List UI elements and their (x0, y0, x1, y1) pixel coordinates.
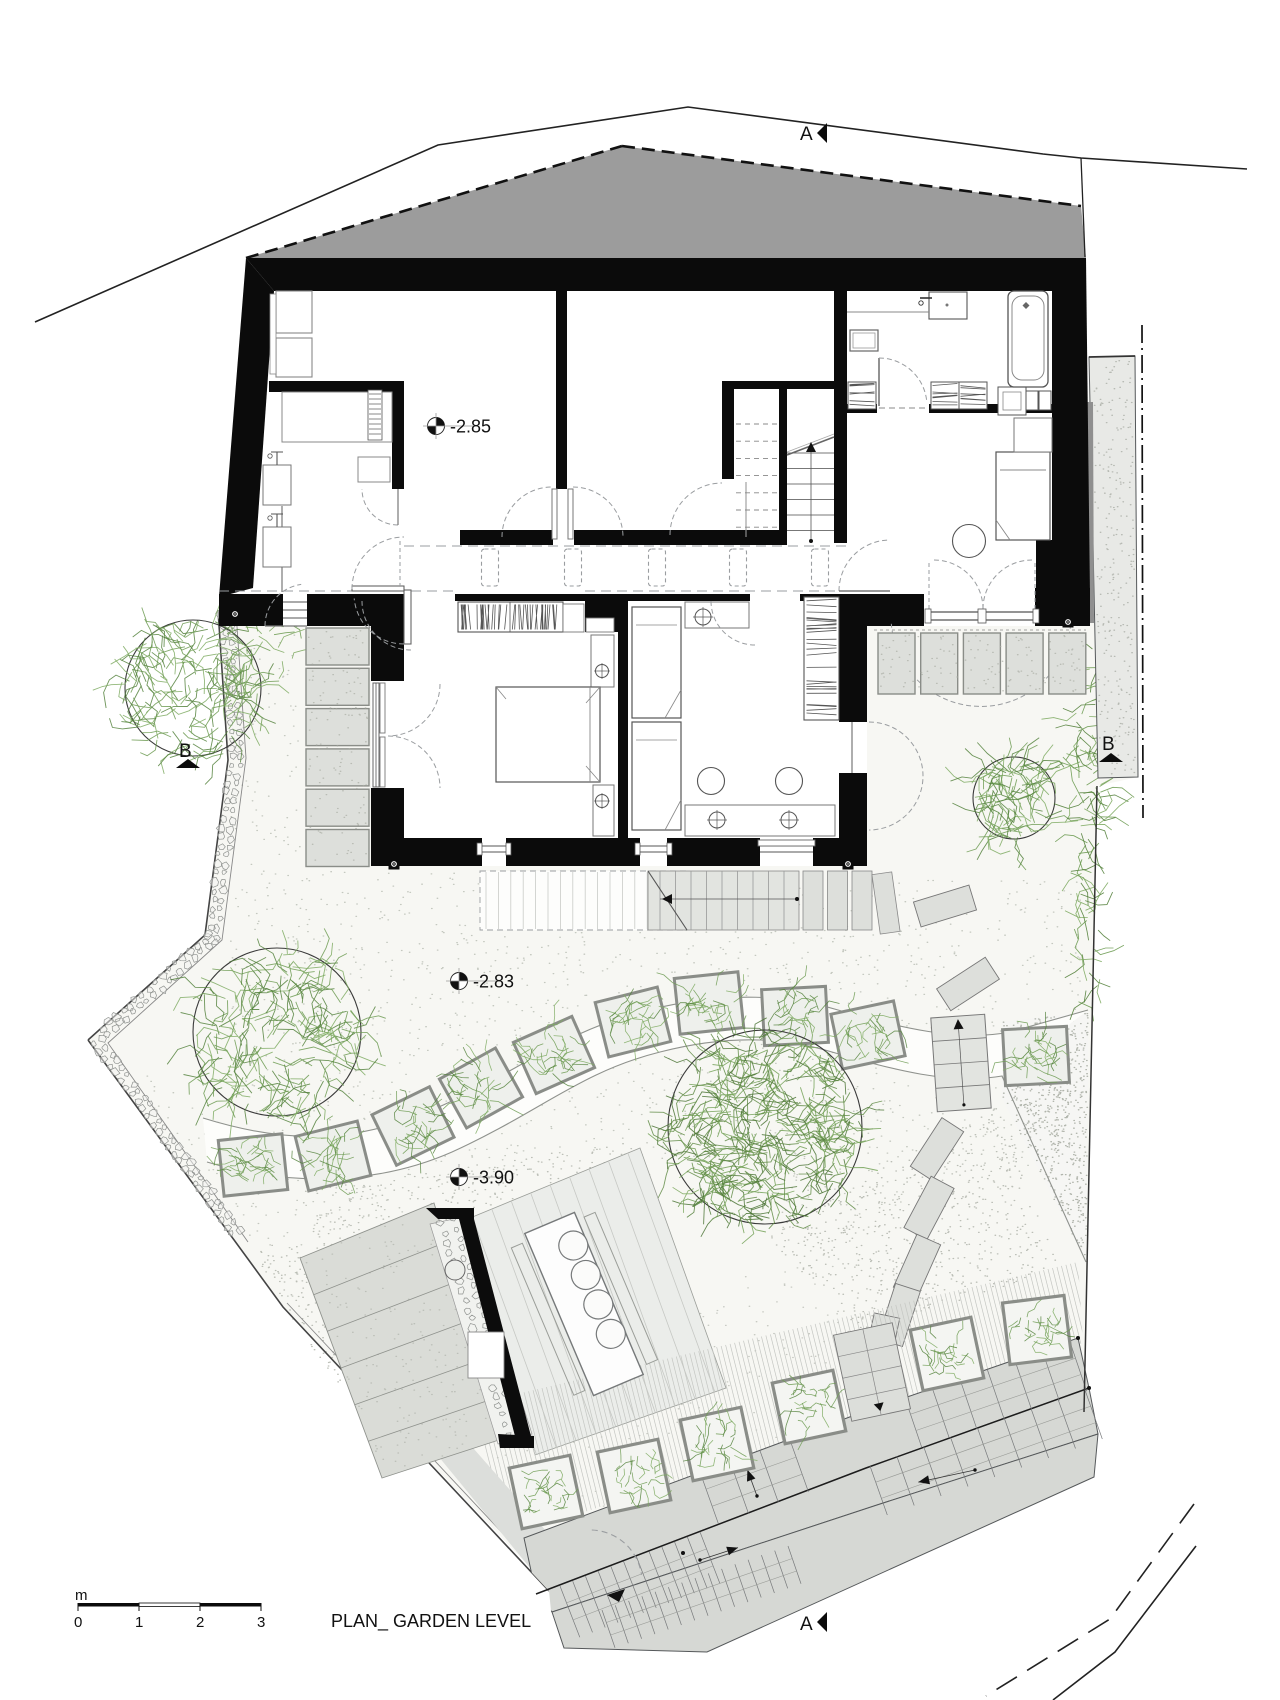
svg-text:m: m (75, 1587, 88, 1604)
svg-text:PLAN_ GARDEN LEVEL: PLAN_ GARDEN LEVEL (331, 1611, 531, 1632)
svg-text:A: A (800, 1614, 813, 1635)
svg-text:1: 1 (135, 1614, 143, 1631)
svg-text:A: A (800, 124, 813, 145)
svg-text:-3.90: -3.90 (473, 1168, 514, 1188)
svg-text:3: 3 (257, 1614, 265, 1631)
svg-text:B: B (1102, 734, 1115, 755)
svg-text:0: 0 (74, 1614, 82, 1631)
svg-text:-2.83: -2.83 (473, 972, 514, 992)
svg-text:-2.85: -2.85 (450, 417, 491, 437)
svg-text:2: 2 (196, 1614, 204, 1631)
svg-text:B: B (179, 741, 192, 762)
